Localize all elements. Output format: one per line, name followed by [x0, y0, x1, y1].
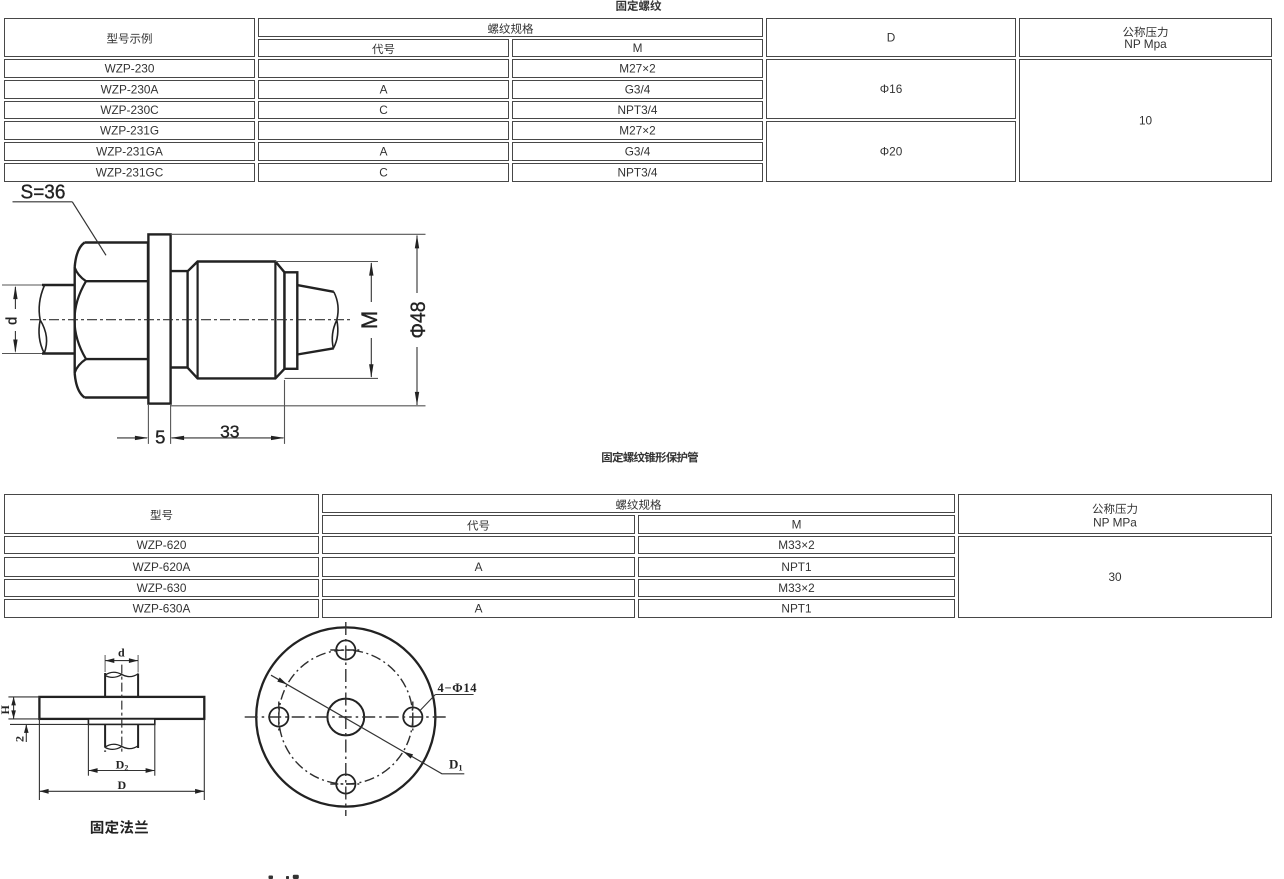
svg-text:10: 10: [1139, 114, 1153, 128]
svg-text:M33×2: M33×2: [778, 538, 814, 552]
svg-text:M27×2: M27×2: [619, 62, 655, 76]
svg-text:WZP-620A: WZP-620A: [133, 560, 191, 574]
svg-text:30: 30: [1108, 570, 1122, 584]
svg-text:C: C: [379, 103, 388, 117]
svg-text:2: 2: [12, 736, 26, 742]
svg-text:Φ20: Φ20: [880, 145, 903, 159]
svg-text:NPT1: NPT1: [781, 560, 811, 574]
svg-text:S=36: S=36: [21, 181, 66, 204]
svg-text:WZP-231GA: WZP-231GA: [96, 145, 163, 159]
svg-text:C: C: [379, 166, 388, 180]
svg-text:WZP-231G: WZP-231G: [100, 124, 159, 138]
svg-text:Φ16: Φ16: [880, 82, 903, 96]
svg-text:4−Φ14: 4−Φ14: [438, 681, 478, 695]
svg-text:M: M: [357, 311, 382, 329]
svg-text:WZP-231GC: WZP-231GC: [96, 166, 164, 180]
svg-text:WZP-230C: WZP-230C: [100, 103, 159, 117]
svg-text:NPT1: NPT1: [781, 602, 811, 616]
svg-text:D: D: [117, 778, 126, 792]
svg-text:d: d: [118, 646, 125, 660]
svg-text:M: M: [792, 518, 802, 532]
svg-text:WZP-630A: WZP-630A: [133, 602, 191, 616]
svg-text:H: H: [0, 704, 12, 714]
svg-text:d: d: [5, 317, 21, 325]
svg-text:NP Mpa: NP Mpa: [1124, 37, 1167, 51]
svg-text:WZP-230: WZP-230: [105, 62, 155, 76]
svg-text:WZP-620: WZP-620: [137, 538, 187, 552]
svg-text:G3/4: G3/4: [625, 83, 651, 97]
svg-text:WZP-230A: WZP-230A: [101, 83, 159, 97]
svg-text:A: A: [380, 83, 388, 97]
svg-text:NP MPa: NP MPa: [1093, 515, 1137, 529]
svg-text:A: A: [475, 602, 483, 616]
svg-text:M33×2: M33×2: [778, 581, 814, 595]
svg-text:Φ48: Φ48: [406, 302, 430, 339]
svg-text:NPT3/4: NPT3/4: [618, 166, 658, 180]
svg-text:D: D: [887, 31, 896, 45]
svg-text:M: M: [633, 41, 643, 55]
svg-text:WZP-630: WZP-630: [137, 581, 187, 595]
svg-text:NPT3/4: NPT3/4: [618, 103, 658, 117]
svg-text:A: A: [475, 560, 483, 574]
svg-text:5: 5: [155, 427, 165, 448]
svg-text:33: 33: [220, 421, 239, 441]
svg-text:G3/4: G3/4: [625, 145, 651, 159]
svg-text:A: A: [380, 145, 388, 159]
svg-text:M27×2: M27×2: [619, 124, 655, 138]
